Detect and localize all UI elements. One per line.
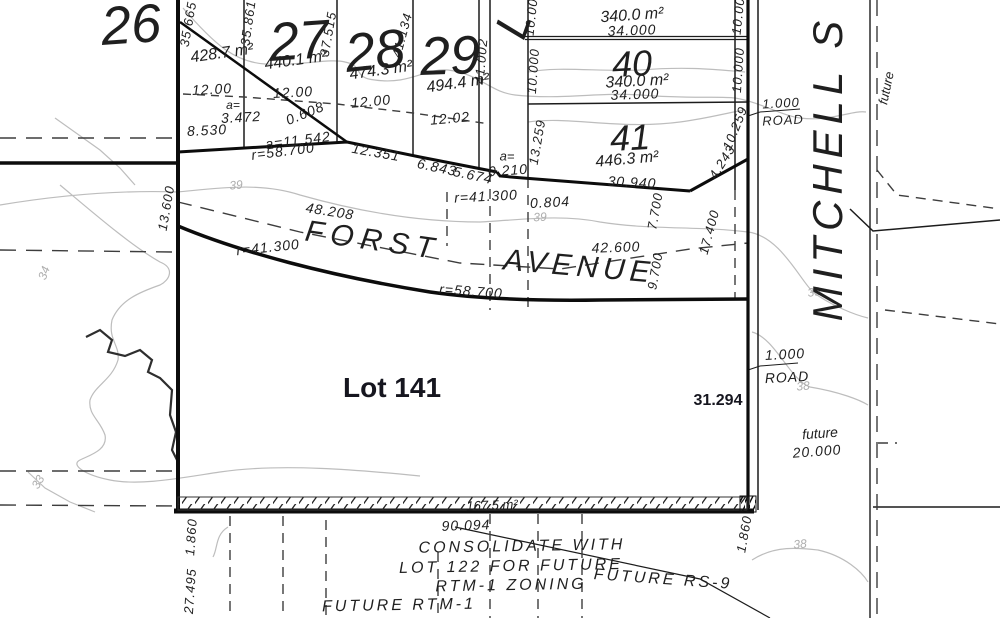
lot-lines <box>244 0 1000 618</box>
hatched-strip <box>178 496 756 512</box>
plat-map: 26428.7 m²27440.1 m²28474.3 m²29494.4 m²… <box>0 0 1000 618</box>
contour-lines <box>0 8 868 582</box>
dashed-lines <box>0 0 1000 618</box>
creek-line <box>86 330 178 462</box>
plat-linework <box>0 0 1000 618</box>
